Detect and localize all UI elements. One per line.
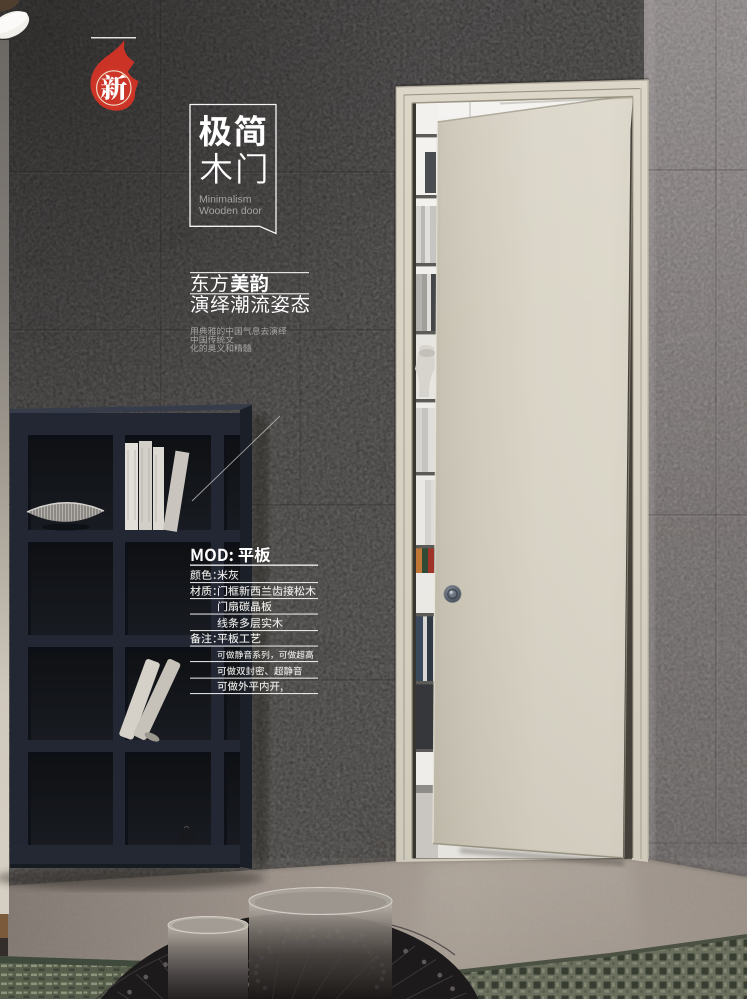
svg-text:Wooden door: Wooden door xyxy=(199,205,262,217)
svg-text:Minimalism: Minimalism xyxy=(199,194,252,206)
